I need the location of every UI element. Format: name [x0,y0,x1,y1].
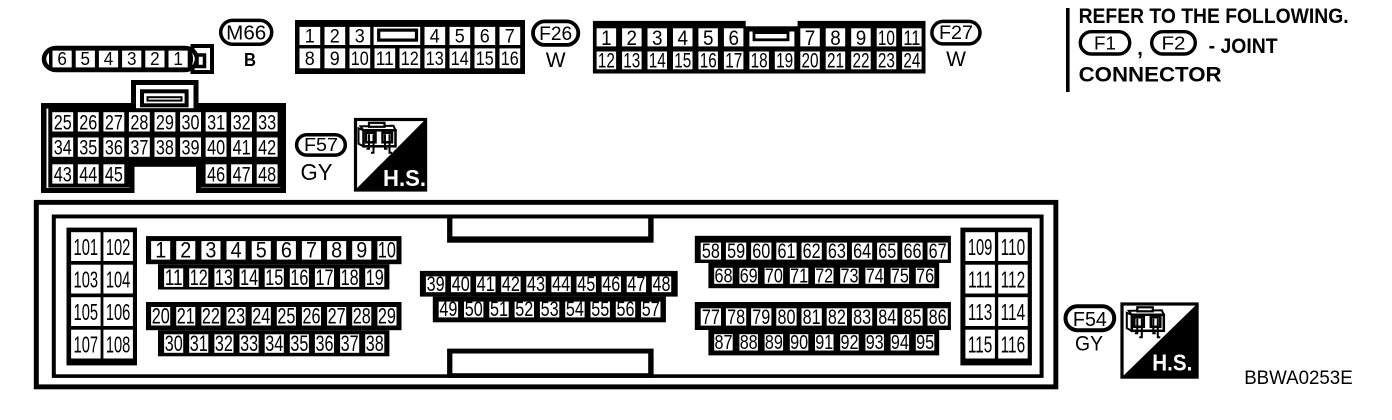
svg-text:37: 37 [341,331,359,356]
svg-text:M66: M66 [226,22,266,44]
svg-text:41: 41 [233,137,251,160]
svg-text:8: 8 [305,49,315,70]
svg-text:86: 86 [929,305,947,329]
svg-text:2: 2 [150,49,160,69]
svg-text:41: 41 [477,273,495,296]
svg-text:24: 24 [903,50,920,73]
svg-text:GY: GY [1075,333,1103,356]
svg-text:43: 43 [54,164,72,187]
svg-text:113: 113 [968,299,993,325]
svg-text:74: 74 [866,264,884,287]
svg-text:26: 26 [303,304,321,329]
svg-text:12: 12 [401,49,419,70]
svg-text:29: 29 [378,304,396,329]
svg-text:3: 3 [355,26,365,47]
svg-text:55: 55 [591,298,609,321]
svg-text:REFER TO THE FOLLOWING.: REFER TO THE FOLLOWING. [1079,5,1349,28]
svg-text:69: 69 [740,264,758,287]
svg-text:89: 89 [765,331,783,354]
svg-text:80: 80 [778,305,796,329]
svg-text:81: 81 [803,305,821,329]
svg-text:W: W [946,48,966,71]
svg-text:8: 8 [331,238,342,263]
svg-text:9: 9 [356,238,367,263]
svg-text:8: 8 [830,27,841,50]
svg-text:13: 13 [426,49,444,70]
svg-text:46: 46 [602,273,620,296]
svg-text:42: 42 [258,137,276,160]
svg-text:107: 107 [74,332,99,358]
svg-text:F57: F57 [304,135,338,155]
svg-text:- JOINT: - JOINT [1209,35,1278,58]
svg-text:51: 51 [490,298,508,321]
svg-text:9: 9 [856,27,867,50]
svg-text:87: 87 [715,331,733,354]
svg-text:67: 67 [929,239,947,263]
svg-text:114: 114 [1001,299,1026,325]
svg-text:2: 2 [330,26,340,47]
svg-text:16: 16 [290,265,308,290]
svg-text:76: 76 [916,264,934,287]
svg-text:61: 61 [778,239,796,263]
svg-text:3: 3 [205,238,216,263]
svg-text:83: 83 [853,305,871,329]
svg-text:37: 37 [130,137,148,160]
svg-text:7: 7 [805,27,816,50]
svg-text:116: 116 [1001,332,1026,358]
svg-text:18: 18 [751,50,768,73]
svg-text:73: 73 [841,264,859,287]
svg-text:5: 5 [455,26,465,47]
svg-text:35: 35 [79,137,97,160]
svg-text:66: 66 [904,239,922,263]
svg-text:27: 27 [328,304,346,329]
svg-text:94: 94 [891,331,909,354]
svg-text:58: 58 [702,239,720,263]
svg-text:78: 78 [727,305,745,329]
svg-text:2: 2 [627,27,638,50]
svg-text:31: 31 [207,111,225,134]
svg-text:62: 62 [803,239,821,263]
svg-text:22: 22 [202,304,220,329]
svg-text:4: 4 [430,26,440,47]
svg-text:17: 17 [316,265,334,290]
svg-text:38: 38 [366,331,384,356]
svg-text:11: 11 [903,27,920,50]
svg-text:45: 45 [105,164,123,187]
svg-text:21: 21 [177,304,195,329]
svg-text:88: 88 [740,331,758,354]
svg-text:CONNECTOR: CONNECTOR [1079,63,1222,86]
svg-text:50: 50 [465,298,483,321]
svg-text:71: 71 [790,264,808,287]
svg-text:B: B [244,50,256,70]
svg-text:115: 115 [968,332,993,358]
svg-text:103: 103 [74,267,99,293]
svg-text:32: 32 [233,111,251,134]
svg-text:40: 40 [207,137,225,160]
svg-text:95: 95 [916,331,934,354]
svg-text:2: 2 [180,238,191,263]
svg-text:45: 45 [577,273,595,296]
svg-text:28: 28 [353,304,371,329]
svg-text:12: 12 [598,50,615,73]
svg-text:28: 28 [130,111,148,134]
svg-text:108: 108 [106,332,131,358]
svg-text:35: 35 [290,331,308,356]
svg-text:40: 40 [452,273,470,296]
svg-text:38: 38 [156,137,174,160]
svg-text:F54: F54 [1073,309,1107,331]
svg-text:9: 9 [330,49,340,70]
svg-text:22: 22 [853,50,870,73]
svg-text:56: 56 [617,298,635,321]
svg-text:36: 36 [316,331,334,356]
svg-text:30: 30 [182,111,200,134]
svg-text:53: 53 [541,298,559,321]
svg-text:43: 43 [527,273,545,296]
svg-text:6: 6 [728,27,739,50]
svg-text:33: 33 [240,331,258,356]
svg-text:17: 17 [725,50,742,73]
svg-text:16: 16 [700,50,717,73]
svg-text:W: W [546,49,566,72]
svg-text:60: 60 [752,239,770,263]
svg-text:20: 20 [802,50,819,73]
svg-text:5: 5 [703,27,714,50]
svg-text:104: 104 [106,267,131,293]
svg-text:30: 30 [165,331,183,356]
svg-text:105: 105 [74,299,99,325]
svg-text:GY: GY [301,159,333,185]
svg-text:84: 84 [878,305,896,329]
svg-text:102: 102 [106,234,131,260]
svg-text:18: 18 [341,265,359,290]
svg-text:F2: F2 [1162,34,1186,54]
svg-text:52: 52 [515,298,533,321]
svg-text:64: 64 [853,239,871,263]
svg-text:21: 21 [827,50,844,73]
svg-text:75: 75 [891,264,909,287]
svg-text:47: 47 [233,164,251,187]
svg-text:32: 32 [215,331,233,356]
svg-text:112: 112 [1001,267,1026,293]
svg-text:4: 4 [104,49,114,69]
svg-text:14: 14 [649,50,666,73]
svg-text:47: 47 [627,273,645,296]
svg-text:23: 23 [878,50,895,73]
svg-text:1: 1 [601,27,612,50]
svg-text:14: 14 [240,265,258,290]
svg-text:106: 106 [106,299,131,325]
svg-text:4: 4 [231,238,242,263]
svg-text:10: 10 [878,27,895,50]
svg-text:14: 14 [451,49,469,70]
svg-text:42: 42 [502,273,520,296]
svg-text:68: 68 [715,264,733,287]
svg-text:29: 29 [156,111,174,134]
svg-text:82: 82 [828,305,846,329]
svg-text:19: 19 [366,265,384,290]
svg-text:85: 85 [904,305,922,329]
svg-text:54: 54 [566,298,584,321]
svg-text:12: 12 [190,265,208,290]
svg-text:44: 44 [552,273,570,296]
svg-text:25: 25 [54,111,72,134]
svg-text:1: 1 [155,238,166,263]
svg-text:65: 65 [878,239,896,263]
svg-text:44: 44 [79,164,97,187]
svg-text:91: 91 [815,331,833,354]
svg-text:3: 3 [127,49,137,69]
svg-text:110: 110 [1001,234,1026,260]
svg-text:15: 15 [476,49,494,70]
svg-text:10: 10 [378,238,396,263]
svg-text:20: 20 [152,304,170,329]
svg-text:27: 27 [105,111,123,134]
svg-text:57: 57 [642,298,660,321]
svg-text:10: 10 [351,49,369,70]
svg-text:7: 7 [306,238,317,263]
svg-text:26: 26 [79,111,97,134]
svg-text:31: 31 [190,331,208,356]
svg-text:BBWA0253E: BBWA0253E [1244,367,1353,389]
svg-text:59: 59 [727,239,745,263]
svg-text:6: 6 [57,49,67,69]
svg-text:39: 39 [427,273,445,296]
svg-text:1: 1 [305,26,315,47]
svg-text:70: 70 [765,264,783,287]
svg-text:34: 34 [54,137,72,160]
svg-text:,: , [1137,37,1143,60]
svg-text:H.S.: H.S. [383,165,426,191]
svg-text:H.S.: H.S. [1152,349,1192,375]
svg-text:15: 15 [265,265,283,290]
svg-text:6: 6 [281,238,292,263]
svg-text:79: 79 [752,305,770,329]
svg-text:1: 1 [173,49,183,69]
svg-text:34: 34 [265,331,283,356]
svg-text:48: 48 [653,273,671,296]
svg-text:111: 111 [968,267,993,293]
svg-text:F26: F26 [539,24,572,45]
svg-text:F27: F27 [939,23,973,44]
svg-text:6: 6 [480,26,490,47]
svg-text:11: 11 [165,265,183,290]
svg-text:7: 7 [505,26,515,47]
svg-text:46: 46 [207,164,225,187]
svg-text:109: 109 [968,234,993,260]
svg-text:24: 24 [252,304,270,329]
svg-text:92: 92 [841,331,859,354]
svg-text:63: 63 [828,239,846,263]
svg-text:48: 48 [258,164,276,187]
svg-text:101: 101 [74,234,99,260]
svg-text:90: 90 [790,331,808,354]
svg-text:5: 5 [81,49,91,69]
svg-text:F1: F1 [1094,34,1116,54]
svg-text:4: 4 [677,27,688,50]
svg-text:33: 33 [258,111,276,134]
svg-text:16: 16 [501,49,519,70]
svg-text:77: 77 [702,305,720,329]
svg-text:19: 19 [776,50,793,73]
svg-text:49: 49 [439,298,457,321]
svg-text:3: 3 [652,27,663,50]
svg-text:93: 93 [866,331,884,354]
svg-text:5: 5 [256,238,267,263]
svg-text:13: 13 [623,50,640,73]
svg-text:13: 13 [215,265,233,290]
svg-text:15: 15 [674,50,691,73]
svg-text:39: 39 [182,137,200,160]
svg-text:36: 36 [105,137,123,160]
svg-text:25: 25 [277,304,295,329]
svg-text:11: 11 [376,49,394,70]
svg-text:23: 23 [227,304,245,329]
svg-text:72: 72 [815,264,833,287]
